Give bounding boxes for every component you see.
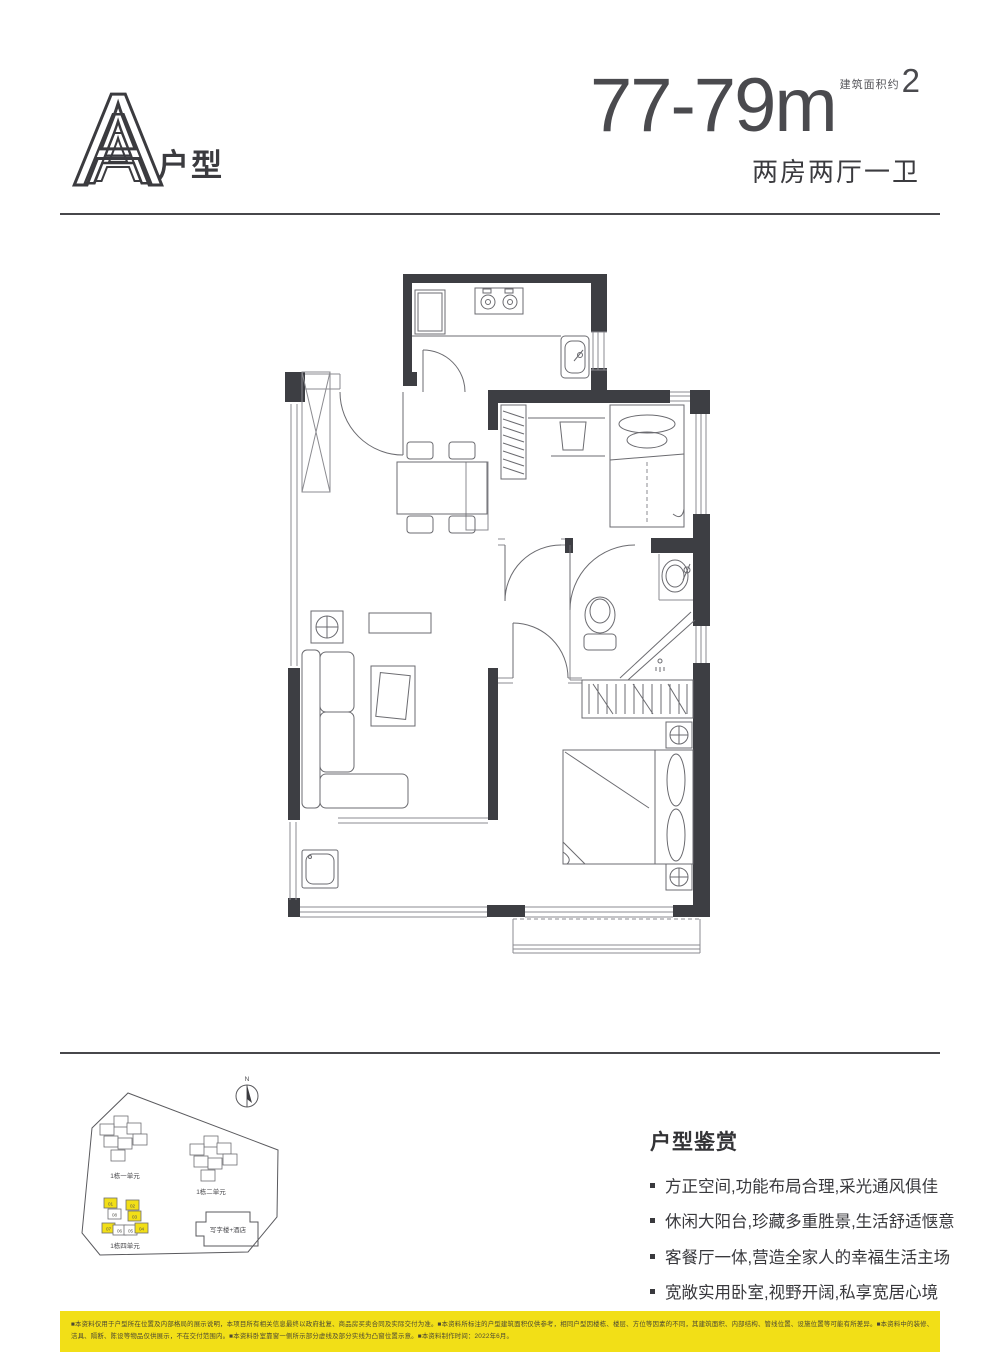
area-info: 77-79m 建筑面积约 2 两房两厅一卫 [590, 70, 920, 189]
cluster-2-label: 1栋二单元 [196, 1187, 226, 1196]
area-value: 77-79m [590, 70, 836, 142]
bedroom2-furniture [501, 405, 684, 527]
bullet-square-icon [650, 1254, 655, 1259]
bullet-square-icon [650, 1289, 655, 1294]
floor-plan-page: A A A 户型 77-79m 建筑面积约 2 两房两厅一卫 [0, 0, 1000, 1357]
cluster-1-label: 1栋一单元 [110, 1171, 140, 1180]
appreciation-bullet-text: 客餐厅一体,营造全家人的幸福生活主场 [665, 1247, 950, 1269]
svg-text:02: 02 [130, 1204, 136, 1209]
layout-description: 两房两厅一卫 [590, 152, 920, 189]
dining-set [397, 442, 487, 533]
svg-text:05: 05 [128, 1229, 134, 1234]
svg-text:04: 04 [139, 1227, 145, 1232]
appreciation-bullet-text: 方正空间,功能布局合理,采光通风俱佳 [665, 1176, 938, 1198]
walls [285, 274, 710, 917]
area-superscript: 2 [902, 64, 920, 97]
list-item: 休闲大阳台,珍藏多重胜景,生活舒适惬意 [650, 1211, 960, 1233]
bathroom-fixtures [584, 560, 695, 680]
list-item: 方正空间,功能布局合理,采光通风俱佳 [650, 1176, 960, 1198]
list-item: 宽敞实用卧室,视野开阔,私享宽居心境 [650, 1282, 960, 1304]
site-plan: N 1栋一单元 1栋二单元 01 08 02 03 07 06 05 [68, 1072, 308, 1277]
top-divider [60, 213, 940, 215]
bullet-square-icon [650, 1218, 655, 1223]
area-note: 建筑面积约 [840, 80, 900, 91]
floor-plan-drawing [283, 258, 713, 958]
bullet-square-icon [650, 1183, 655, 1188]
appreciation-bullet-text: 休闲大阳台,珍藏多重胜景,生活舒适惬意 [665, 1211, 955, 1233]
building-cluster-1 [100, 1116, 147, 1161]
master-bedroom-furniture [563, 680, 693, 890]
disclaimer-line-1: ■本资料仅用于户型所在位置及内部格局的展示说明，本项目所有相关信息最终以政府批复… [71, 1319, 929, 1331]
appreciation-title: 户型鉴赏 [650, 1126, 960, 1156]
office-hotel-building: 写字楼+酒店 [196, 1212, 258, 1246]
list-item: 客餐厅一体,营造全家人的幸福生活主场 [650, 1247, 960, 1269]
svg-text:06: 06 [117, 1229, 123, 1234]
disclaimer-line-2: 洁具、隔断、陈设等物品仅供展示，不在交付范围内。■本资料卧室靠窗一侧所示部分虚线… [71, 1331, 929, 1343]
bottom-divider [60, 1052, 940, 1054]
svg-text:07: 07 [106, 1227, 112, 1232]
balcony-washer [302, 850, 338, 888]
cluster-4-label: 1栋四单元 [110, 1241, 140, 1250]
svg-text:N: N [245, 1076, 250, 1083]
appreciation-bullet-text: 宽敞实用卧室,视野开阔,私享宽居心境 [665, 1282, 938, 1304]
svg-text:01: 01 [108, 1202, 114, 1207]
plan-type-label: 户型 [158, 140, 224, 185]
svg-text:08: 08 [112, 1213, 118, 1218]
appreciation-list: 方正空间,功能布局合理,采光通风俱佳 休闲大阳台,珍藏多重胜景,生活舒适惬意 客… [650, 1176, 960, 1304]
letter-a-inner: A [95, 118, 142, 191]
kitchen-fixtures [412, 288, 589, 378]
compass-icon: N [236, 1076, 258, 1107]
building-cluster-4-highlighted: 01 08 02 03 07 06 05 04 [102, 1198, 148, 1235]
building-cluster-2 [190, 1136, 237, 1181]
living-room-furniture [302, 611, 431, 808]
appreciation-section: 户型鉴赏 方正空间,功能布局合理,采光通风俱佳 休闲大阳台,珍藏多重胜景,生活舒… [650, 1126, 960, 1304]
office-hotel-label: 写字楼+酒店 [210, 1225, 247, 1234]
disclaimer-bar: ■本资料仅用于户型所在位置及内部格局的展示说明，本项目所有相关信息最终以政府批复… [60, 1311, 940, 1352]
svg-text:03: 03 [132, 1215, 138, 1220]
